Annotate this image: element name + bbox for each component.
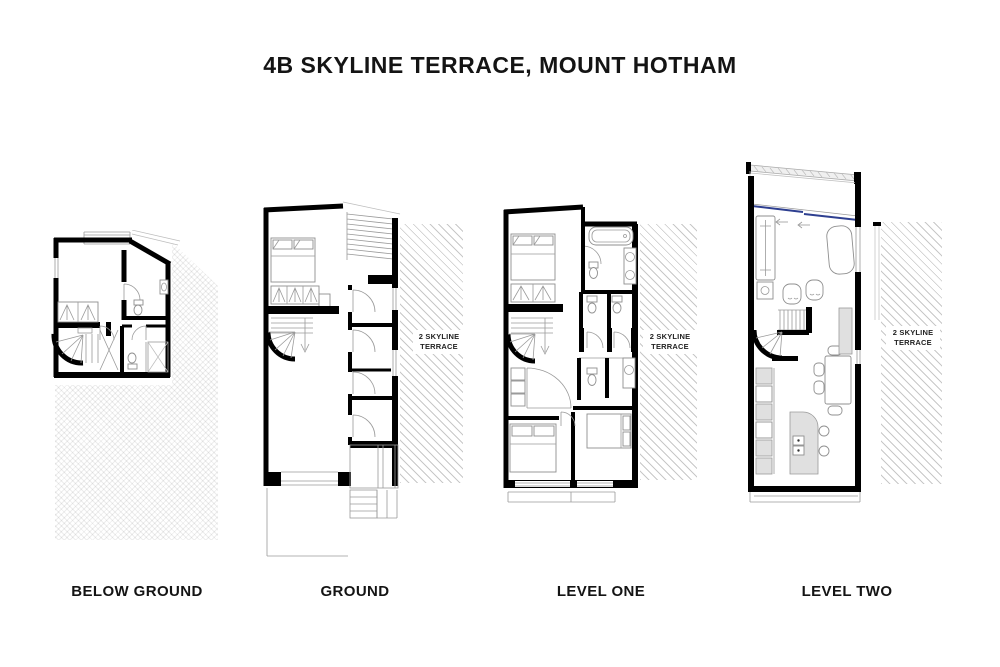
floorplan-ground: 2 SKYLINE TERRACE (255, 200, 467, 565)
floorplan-level-two: 2 SKYLINE TERRACE (740, 160, 965, 505)
label-ground: GROUND (255, 583, 455, 600)
plan-level-two (740, 160, 965, 505)
page-title: 4B SKYLINE TERRACE, MOUNT HOTHAM (0, 52, 1000, 79)
fridge-pantry (839, 308, 852, 354)
plan-below-ground (40, 230, 235, 545)
floorplan-level-one: 2 SKYLINE TERRACE (495, 200, 707, 510)
floorplan-below-ground (40, 230, 235, 545)
plan-level-one (495, 200, 707, 510)
bench-table (756, 216, 775, 299)
sofa (826, 225, 855, 275)
label-level-two: LEVEL TWO (747, 583, 947, 600)
balcony (508, 492, 615, 502)
plan-ground (255, 200, 467, 565)
bedroom-main (508, 234, 563, 312)
label-below-ground: BELOW GROUND (37, 583, 237, 600)
driveway (267, 488, 397, 556)
floor-plan-sheet: 4B SKYLINE TERRACE, MOUNT HOTHAM (0, 0, 1000, 667)
label-level-one: LEVEL ONE (501, 583, 701, 600)
